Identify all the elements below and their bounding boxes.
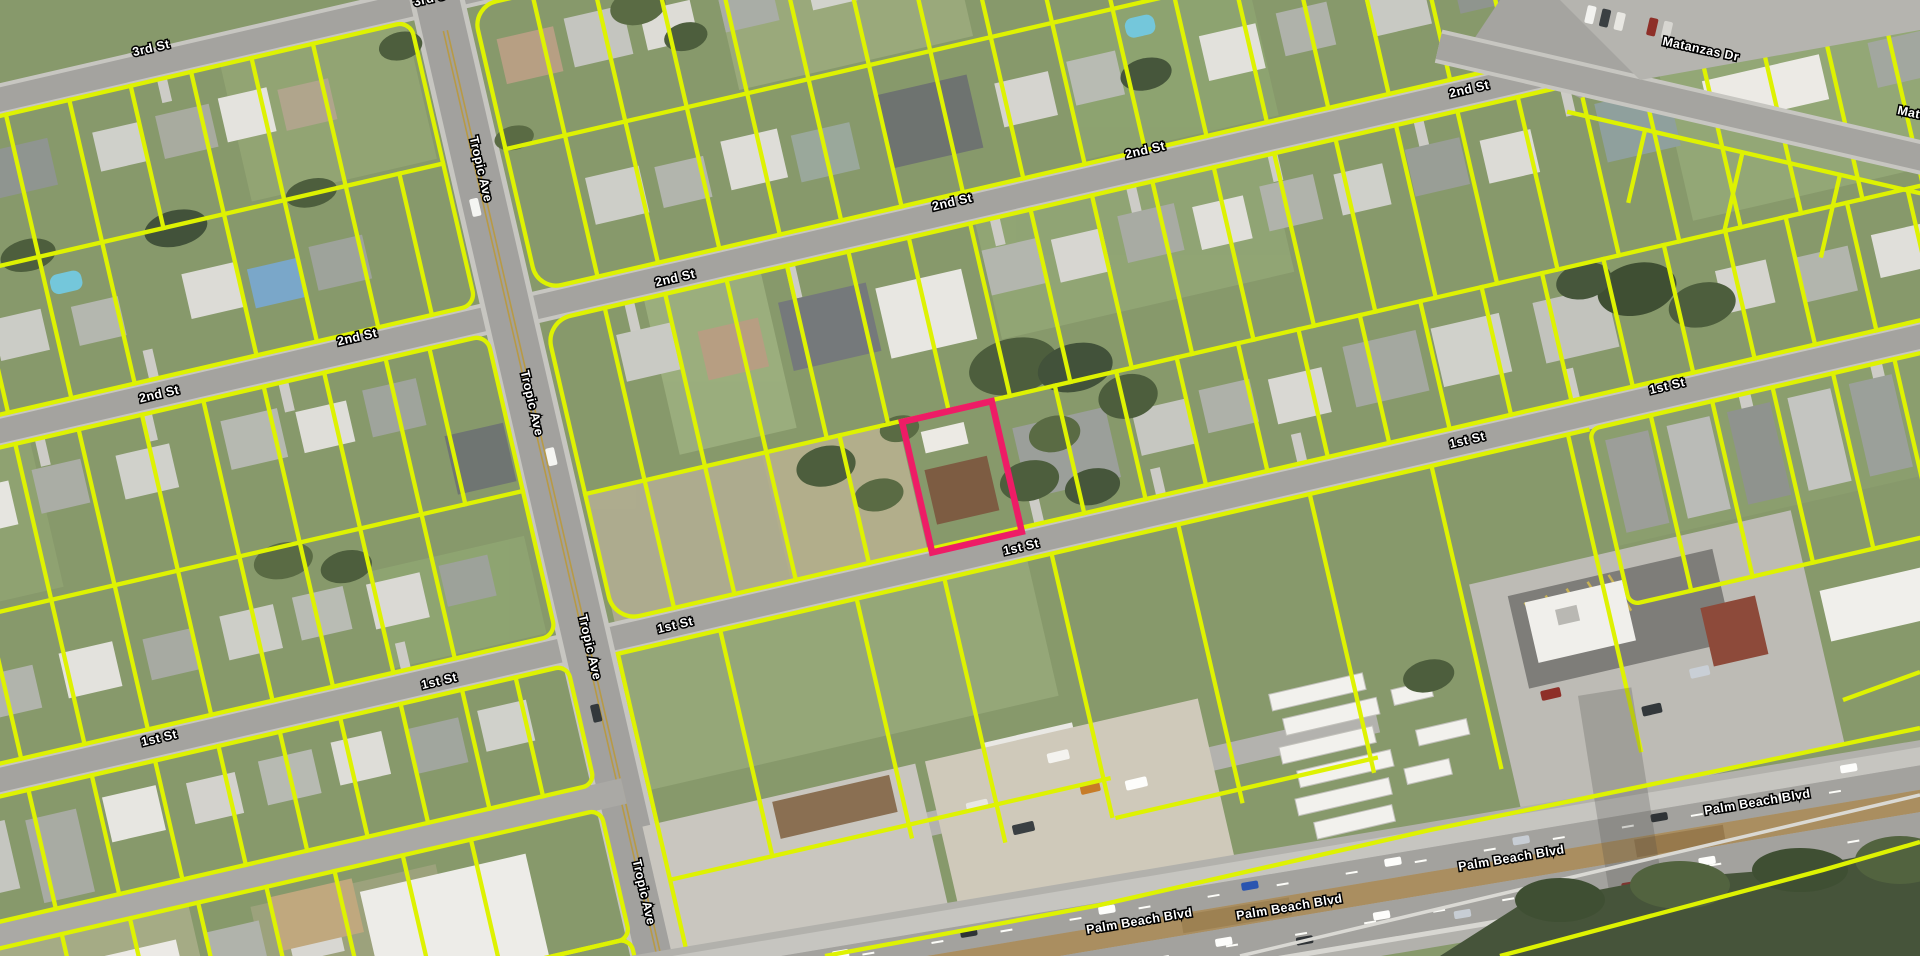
map-viewport[interactable]: 3rd St3rd St2nd St2nd St2nd St2nd St2nd … [0, 0, 1920, 956]
map-canvas[interactable]: 3rd St3rd St2nd St2nd St2nd St2nd St2nd … [0, 0, 1920, 956]
